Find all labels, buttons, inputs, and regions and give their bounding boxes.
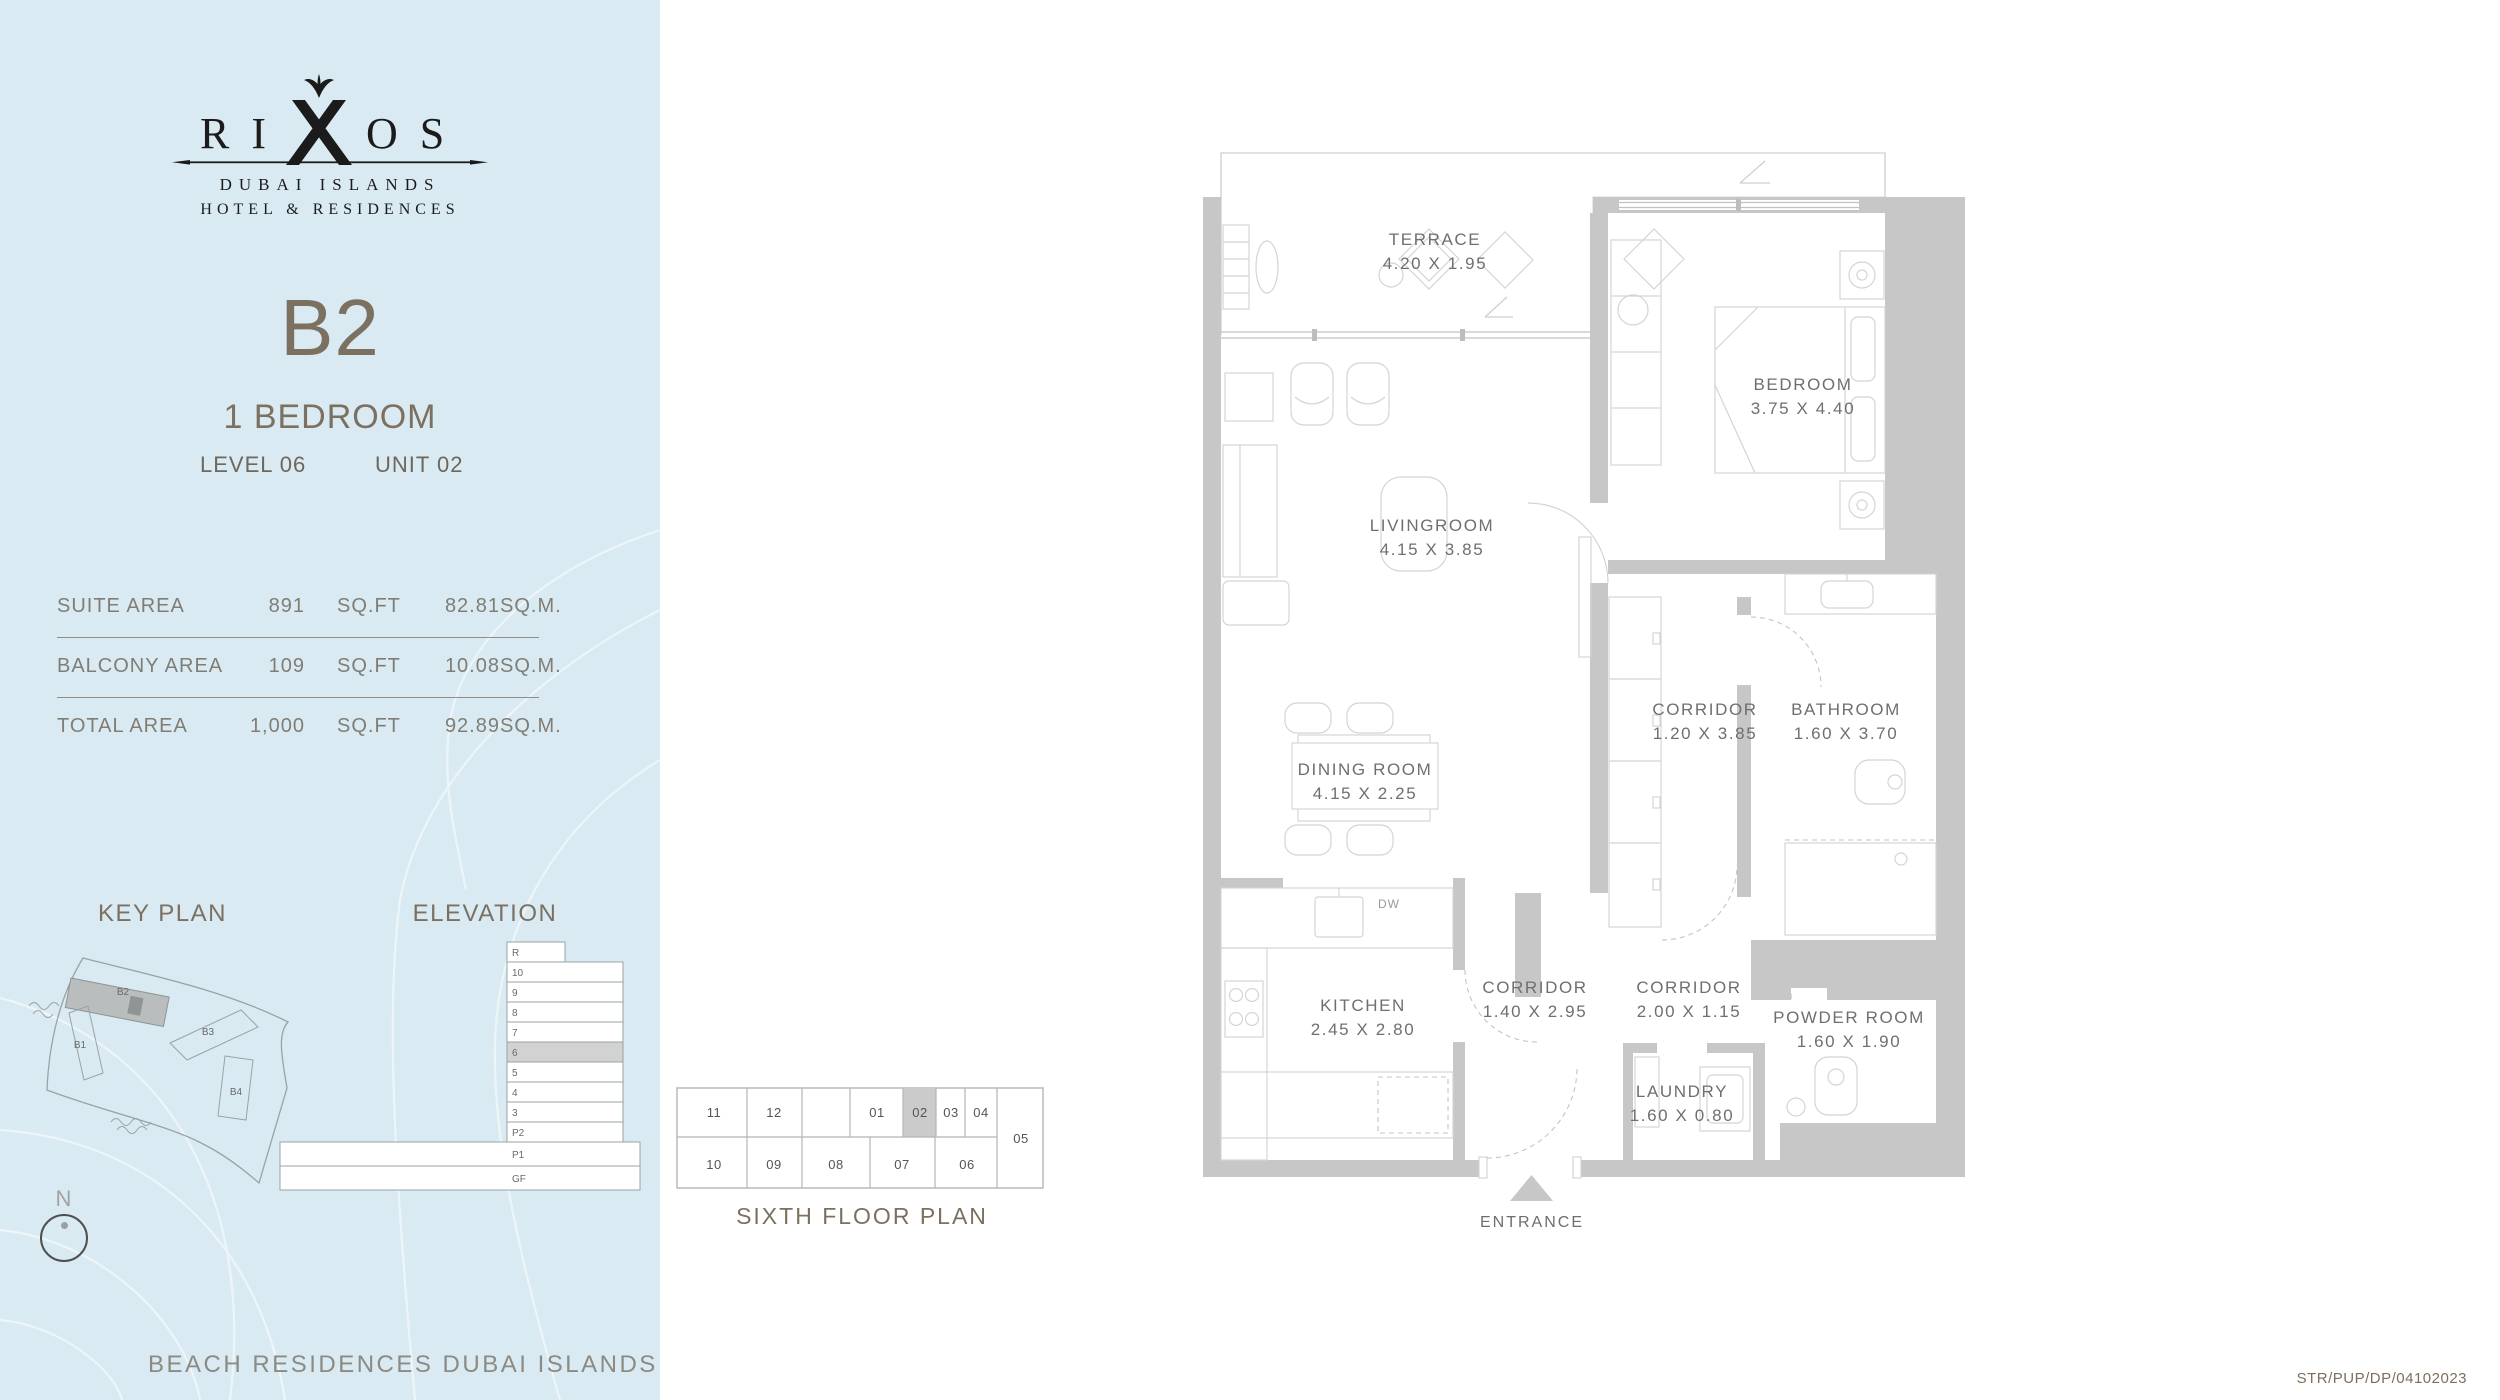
room-dims: 2.45 X 2.80 — [1311, 1020, 1416, 1039]
room-name: LAUNDRY — [1636, 1082, 1728, 1101]
floor-label: GF — [512, 1174, 526, 1185]
room-dims: 4.15 X 3.85 — [1380, 540, 1485, 559]
area-sqft-unit: SQ.FT — [305, 655, 400, 678]
floor-label: 8 — [512, 1008, 518, 1019]
windows — [1221, 199, 1859, 341]
document-code: STR/PUP/DP/04102023 — [2297, 1370, 2467, 1387]
unit-key-label: 03 — [943, 1105, 958, 1120]
rixos-logo: RI OS DUBAI ISLANDS HOTEL & RESIDENCES — [170, 72, 490, 224]
elevation-diagram: R 10 9 8 7 6 5 4 3 P2 P1 GF — [275, 940, 645, 1192]
room-dims: 1.20 X 3.85 — [1653, 724, 1758, 743]
floor-key-caption: SIXTH FLOOR PLAN — [672, 1203, 1052, 1230]
area-table: SUITE AREA 891 SQ.FT 82.81 SQ.M. BALCONY… — [57, 578, 539, 757]
area-sqm-value: 10.08 — [400, 655, 500, 678]
project-tagline: BEACH RESIDENCES DUBAI ISLANDS — [148, 1351, 658, 1379]
unit-code: B2 — [0, 282, 660, 374]
entrance-arrow-icon — [1510, 1175, 1553, 1201]
room-name: KITCHEN — [1320, 996, 1406, 1015]
unit-key-label: 09 — [766, 1157, 781, 1172]
area-sqft-value: 1,000 — [225, 715, 305, 738]
logo-letters-left: RI — [200, 109, 288, 158]
room-dims: 1.60 X 3.70 — [1794, 724, 1899, 743]
unit-key-label: 11 — [707, 1105, 722, 1120]
key-plan-title: KEY PLAN — [40, 900, 285, 928]
logo-letters-right: OS — [366, 109, 466, 158]
floor-label-highlight: 6 — [512, 1048, 518, 1059]
floor-label: P1 — [512, 1150, 525, 1161]
table-row: SUITE AREA 891 SQ.FT 82.81 SQ.M. — [57, 578, 539, 637]
room-dims: 4.15 X 2.25 — [1313, 784, 1418, 803]
logo-subline-2: HOTEL & RESIDENCES — [200, 201, 459, 218]
room-dims: 3.75 X 4.40 — [1751, 399, 1856, 418]
logo-subline-1: DUBAI ISLANDS — [220, 175, 441, 194]
building-label-b3: B3 — [202, 1027, 215, 1038]
floor-label: 3 — [512, 1108, 518, 1119]
elevation-title: ELEVATION — [350, 900, 620, 928]
area-label: TOTAL AREA — [57, 715, 225, 738]
floor-label: P2 — [512, 1128, 525, 1139]
unit-type: 1 BEDROOM — [0, 398, 660, 437]
unit-key-label: 12 — [766, 1105, 781, 1120]
room-name: LIVINGROOM — [1370, 516, 1495, 535]
floor-key-plan: 11 12 01 02 03 04 05 10 09 08 07 06 — [672, 1078, 1052, 1193]
dining-furniture — [1285, 703, 1438, 855]
corridor-wardrobe — [1609, 597, 1661, 927]
north-label: N — [36, 1186, 92, 1212]
room-name: CORRIDOR — [1652, 700, 1757, 719]
unit-key-label: 06 — [959, 1157, 974, 1172]
area-sqft-value: 891 — [225, 595, 305, 618]
area-sqft-unit: SQ.FT — [305, 715, 400, 738]
key-plan-map: B1 B2 B3 B4 — [25, 938, 315, 1198]
room-dims: 1.60 X 0.80 — [1630, 1106, 1735, 1125]
area-sqft-value: 109 — [225, 655, 305, 678]
room-name: CORRIDOR — [1482, 978, 1587, 997]
area-label: BALCONY AREA — [57, 655, 225, 678]
unit-number: UNIT 02 — [375, 452, 464, 478]
brochure-page: RI OS DUBAI ISLANDS HOTEL & RESIDENCES B… — [0, 0, 2500, 1400]
room-name: DINING ROOM — [1298, 760, 1433, 779]
unit-key-label: 04 — [973, 1105, 988, 1120]
unit-level: LEVEL 06 — [200, 452, 306, 478]
area-sqm-unit: SQ.M. — [500, 715, 539, 738]
building-b2-highlight — [65, 978, 169, 1027]
area-label: SUITE AREA — [57, 595, 225, 618]
building-label-b2: B2 — [117, 987, 130, 998]
building-label-b1: B1 — [74, 1040, 87, 1051]
floor-label: 4 — [512, 1088, 518, 1099]
area-sqm-unit: SQ.M. — [500, 655, 539, 678]
room-name: POWDER ROOM — [1773, 1008, 1925, 1027]
room-name: BEDROOM — [1753, 375, 1852, 394]
area-sqm-value: 82.81 — [400, 595, 500, 618]
rixos-wordmark-icon: RI OS — [172, 74, 488, 165]
room-name: BATHROOM — [1791, 700, 1901, 719]
unit-key-label: 01 — [869, 1105, 884, 1120]
room-name: CORRIDOR — [1636, 978, 1741, 997]
dishwasher-label: DW — [1378, 897, 1400, 911]
unit-key-label: 07 — [894, 1157, 909, 1172]
floor-label: R — [512, 948, 519, 959]
room-dims: 2.00 X 1.15 — [1637, 1002, 1742, 1021]
floor-label: 5 — [512, 1068, 518, 1079]
unit-floor-plan: TERRACE 4.20 X 1.95 BEDROOM 3.75 X 4.40 … — [1195, 145, 1980, 1235]
compass-circle-icon — [40, 1214, 88, 1262]
entrance-label: ENTRANCE — [1480, 1214, 1584, 1231]
table-row: TOTAL AREA 1,000 SQ.FT 92.89 SQ.M. — [57, 698, 539, 757]
unit-key-label: 08 — [828, 1157, 843, 1172]
room-dims: 1.60 X 1.90 — [1797, 1032, 1902, 1051]
floor-label: 10 — [512, 968, 524, 979]
living-room-furniture — [1223, 363, 1591, 657]
unit-key-label-highlight: 02 — [912, 1105, 927, 1120]
floor-label: 9 — [512, 988, 518, 999]
room-name: TERRACE — [1389, 230, 1481, 249]
room-dims: 1.40 X 2.95 — [1483, 1002, 1588, 1021]
water-waves-icon — [29, 1003, 151, 1134]
table-row: BALCONY AREA 109 SQ.FT 10.08 SQ.M. — [57, 638, 539, 697]
building-label-b4: B4 — [230, 1087, 243, 1098]
room-dims: 4.20 X 1.95 — [1383, 254, 1488, 273]
area-sqm-value: 92.89 — [400, 715, 500, 738]
north-compass: N — [36, 1186, 92, 1262]
area-sqft-unit: SQ.FT — [305, 595, 400, 618]
area-sqm-unit: SQ.M. — [500, 595, 539, 618]
bathroom-fixtures — [1785, 574, 1936, 935]
unit-key-label: 05 — [1013, 1131, 1028, 1146]
floor-label: 7 — [512, 1028, 518, 1039]
unit-key-label: 10 — [706, 1157, 721, 1172]
